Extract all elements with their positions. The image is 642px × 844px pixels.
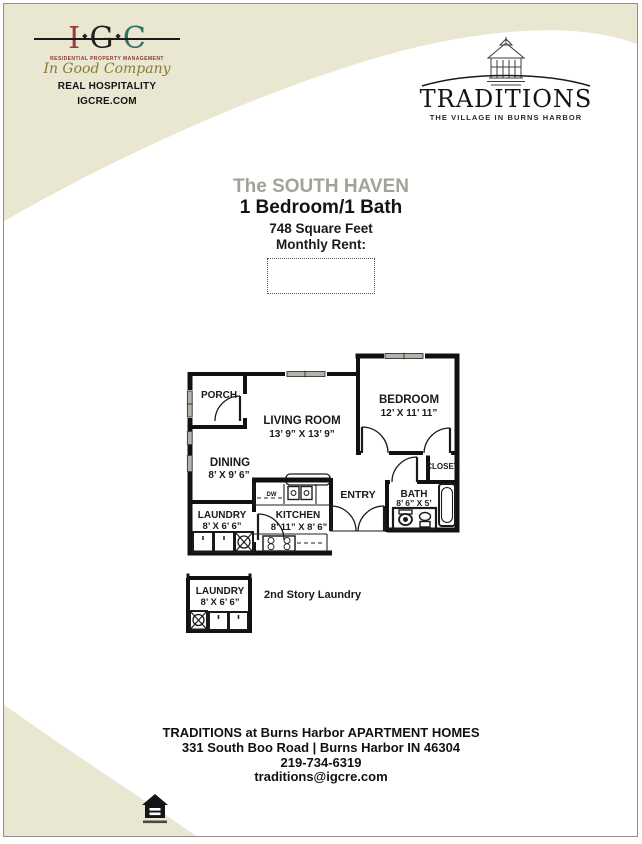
bed-bath-config: 1 Bedroom/1 Bath — [0, 197, 642, 219]
igc-strike-line — [34, 38, 180, 40]
bedroom-dims: 12’ X 11’ 11” — [381, 408, 438, 419]
kitchen-sink-icon — [288, 487, 312, 500]
laundry2-dims: 8’ X 6’ 6” — [200, 597, 239, 608]
title-block: The SOUTH HAVEN 1 Bedroom/1 Bath 748 Squ… — [0, 176, 642, 294]
bedroom-label: BEDROOM — [379, 394, 439, 406]
footer-address: 331 South Boo Road | Burns Harbor IN 463… — [0, 741, 642, 756]
dining-label: DINING — [210, 457, 250, 469]
laundry-fixtures — [193, 532, 253, 552]
kitchen-label: KITCHEN — [276, 510, 320, 521]
washer-icon — [193, 532, 213, 552]
entry-door-left-arc — [331, 506, 356, 531]
footer-phone: 219-734-6319 — [0, 756, 642, 771]
gazebo-icon — [408, 36, 604, 88]
rent-price-box — [267, 258, 375, 294]
washer-icon — [209, 612, 228, 630]
traditions-logo: TRADITIONS THE VILLAGE IN BURNS HARBOR — [408, 36, 604, 122]
laundry-label: LAUNDRY — [198, 510, 247, 521]
monthly-rent-label: Monthly Rent: — [0, 237, 642, 253]
closet-door-arc — [424, 428, 450, 453]
equal-housing-icon — [140, 792, 170, 826]
floorplan: PORCH LIVING ROOM 13’ 9” X 13’ 9” BEDROO… — [182, 348, 462, 645]
living-room-label: LIVING ROOM — [263, 415, 340, 427]
igc-real-hospitality: REAL HOSPITALITY — [40, 81, 174, 92]
kitchen-lower-counter — [254, 534, 327, 551]
kitchen-dims: 8’ 11” X 8’ 6” — [271, 522, 328, 533]
igc-logo: I◆G◆C RESIDENTIAL PROPERTY MANAGEMENT In… — [40, 24, 174, 107]
room-labels: PORCH LIVING ROOM 13’ 9” X 13’ 9” BEDROO… — [196, 390, 459, 608]
igc-wordmark: I◆G◆C — [40, 24, 174, 55]
igc-script-tagline: In Good Company — [40, 62, 174, 77]
living-room-dims: 13’ 9” X 13’ 9” — [269, 429, 335, 440]
bathtub-icon — [439, 484, 455, 526]
pedestal-sink-icon — [420, 513, 431, 528]
second-laundry-fixtures — [190, 611, 248, 630]
bedroom-door-arc — [362, 427, 388, 453]
dryer-icon — [229, 612, 248, 630]
utility-sink-icon — [190, 611, 207, 630]
footer-line1: TRADITIONS at Burns Harbor APARTMENT HOM… — [0, 726, 642, 741]
plan-name: The SOUTH HAVEN — [0, 176, 642, 197]
dryer-icon — [214, 532, 234, 552]
utility-sink-icon — [235, 532, 253, 552]
bath-dims: 8’ 6” X 5’ — [396, 498, 431, 508]
square-feet: 748 Square Feet — [0, 221, 642, 237]
igc-website: IGCRE.COM — [40, 96, 174, 107]
closet-label: CLOSET — [426, 462, 459, 471]
flyer-page: I◆G◆C RESIDENTIAL PROPERTY MANAGEMENT In… — [0, 0, 642, 844]
second-story-note: 2nd Story Laundry — [264, 589, 362, 601]
dining-dims: 8’ X 9’ 6” — [208, 470, 249, 481]
entry-door-right-arc — [358, 506, 384, 531]
dishwasher-label: DW — [267, 492, 277, 498]
entry-label: ENTRY — [340, 489, 375, 501]
porch-label: PORCH — [201, 390, 237, 401]
footer-email: traditions@igcre.com — [0, 770, 642, 785]
bath-door-arc — [392, 457, 417, 482]
traditions-wordmark: TRADITIONS — [408, 87, 604, 111]
laundry-dims: 8’ X 6’ 6” — [202, 521, 241, 532]
footer-contact-block: TRADITIONS at Burns Harbor APARTMENT HOM… — [0, 726, 642, 785]
traditions-tagline: THE VILLAGE IN BURNS HARBOR — [408, 113, 604, 122]
toilet-icon — [399, 510, 412, 525]
stove-icon — [263, 536, 295, 551]
laundry2-label: LAUNDRY — [196, 586, 245, 597]
